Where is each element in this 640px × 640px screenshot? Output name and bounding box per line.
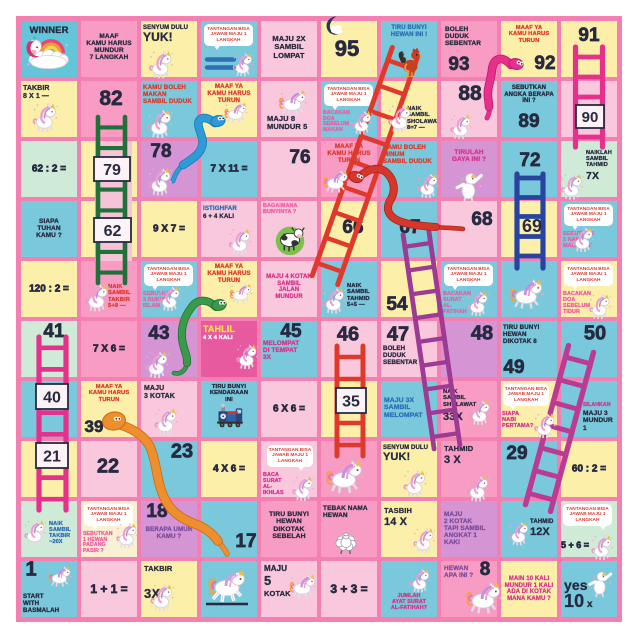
svg-text:90: 90 [582, 109, 599, 126]
svg-text:40: 40 [43, 389, 61, 406]
svg-text:69: 69 [522, 216, 542, 236]
svg-text:62: 62 [104, 223, 122, 240]
svg-text:79: 79 [103, 162, 121, 179]
svg-text:35: 35 [342, 393, 360, 410]
svg-text:21: 21 [43, 448, 61, 465]
